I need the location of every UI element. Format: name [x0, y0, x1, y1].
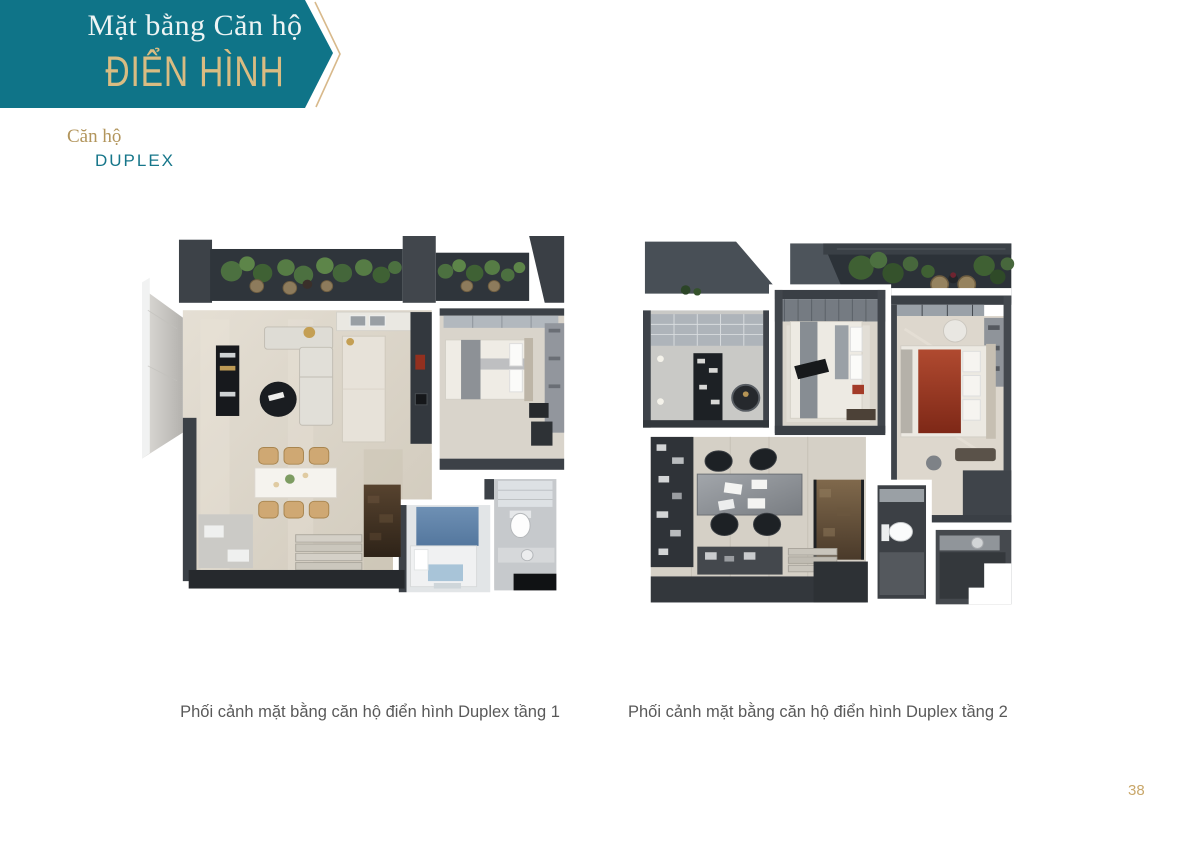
- lounge: [643, 310, 771, 427]
- section-label: Căn hộ DUPLEX: [67, 126, 175, 171]
- bathroom-1: [872, 480, 932, 605]
- title-banner: Mặt bằng Căn hộ ĐIỂN HÌNH: [0, 0, 348, 110]
- floorplan-figure-level1: [142, 236, 570, 621]
- bedroom-2: [769, 284, 891, 438]
- dining-area: [255, 448, 337, 519]
- section-category-label: Căn hộ: [67, 126, 175, 148]
- floorplan-caption-level2: Phối cảnh mặt bằng căn hộ điển hình Dupl…: [628, 702, 1006, 722]
- banner-title: Mặt bằng Căn hộ: [0, 9, 350, 43]
- floorplan-level1-image: [142, 236, 570, 621]
- floorplan-figure-level2: [643, 236, 1021, 622]
- section-type-label: DUPLEX: [95, 151, 175, 171]
- page-number: 38: [1128, 782, 1172, 799]
- small-bedroom: [393, 499, 494, 595]
- upper-wall-block: [645, 242, 781, 296]
- bathroom-2: [930, 522, 1011, 604]
- brochure-page: Mặt bằng Căn hộ ĐIỂN HÌNH Căn hộ DUPLEX: [0, 0, 1201, 848]
- bedroom: [434, 305, 570, 478]
- floorplan-level2-image: [643, 236, 1021, 622]
- floorplan-caption-level1: Phối cảnh mặt bằng căn hộ điển hình Dupl…: [156, 702, 584, 722]
- banner-subtitle: ĐIỂN HÌNH: [84, 47, 305, 96]
- balcony: [179, 236, 564, 303]
- foyer: [142, 278, 183, 459]
